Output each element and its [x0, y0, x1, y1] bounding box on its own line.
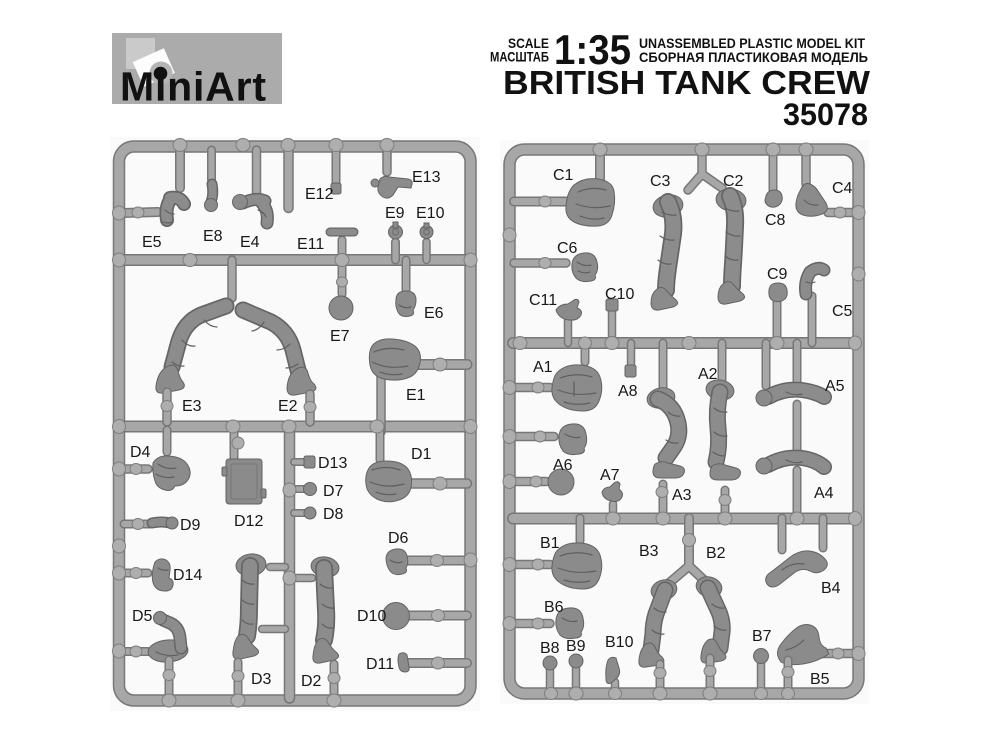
svg-text:A4: A4 — [814, 485, 834, 502]
svg-text:D9: D9 — [180, 517, 201, 534]
svg-text:C4: C4 — [832, 180, 853, 197]
svg-text:B9: B9 — [566, 638, 586, 655]
svg-text:C2: C2 — [723, 173, 744, 190]
svg-text:D4: D4 — [130, 444, 151, 461]
svg-text:E5: E5 — [142, 234, 162, 251]
svg-text:C1: C1 — [553, 167, 574, 184]
svg-text:B3: B3 — [639, 543, 659, 560]
svg-text:B1: B1 — [540, 535, 560, 552]
svg-text:UNASSEMBLED PLASTIC MODEL KIT: UNASSEMBLED PLASTIC MODEL KIT — [639, 36, 866, 51]
svg-text:D6: D6 — [388, 530, 409, 547]
svg-text:E10: E10 — [416, 205, 445, 222]
svg-text:C10: C10 — [605, 286, 634, 303]
svg-text:B5: B5 — [810, 671, 830, 688]
svg-text:D11: D11 — [366, 656, 394, 673]
svg-text:D3: D3 — [251, 671, 272, 688]
svg-text:B8: B8 — [540, 640, 560, 657]
svg-text:D10: D10 — [357, 608, 386, 625]
svg-text:C6: C6 — [557, 240, 578, 257]
svg-text:B2: B2 — [706, 545, 726, 562]
svg-text:СБОРНАЯ ПЛАСТИКОВАЯ МОДЕЛЬ: СБОРНАЯ ПЛАСТИКОВАЯ МОДЕЛЬ — [639, 50, 868, 65]
svg-text:B4: B4 — [821, 580, 841, 597]
svg-text:A1: A1 — [533, 359, 553, 376]
svg-text:E7: E7 — [330, 328, 350, 345]
svg-text:MiniArt: MiniArt — [120, 64, 267, 110]
svg-text:E12: E12 — [305, 186, 334, 203]
svg-text:D7: D7 — [323, 483, 344, 500]
svg-text:E8: E8 — [203, 228, 223, 245]
svg-text:D14: D14 — [173, 567, 202, 584]
svg-text:C3: C3 — [650, 173, 671, 190]
svg-text:C11: C11 — [529, 292, 557, 309]
svg-text:D12: D12 — [234, 513, 263, 530]
svg-text:E4: E4 — [240, 234, 260, 251]
svg-text:B7: B7 — [752, 628, 772, 645]
svg-text:E13: E13 — [412, 169, 441, 186]
svg-text:C8: C8 — [765, 212, 786, 229]
svg-text:E6: E6 — [424, 305, 444, 322]
svg-text:A2: A2 — [698, 366, 718, 383]
svg-text:E9: E9 — [385, 205, 405, 222]
svg-text:E1: E1 — [406, 387, 426, 404]
svg-text:A5: A5 — [825, 378, 845, 395]
svg-text:E11: E11 — [297, 236, 324, 253]
svg-text:A7: A7 — [600, 467, 620, 484]
svg-text:E2: E2 — [278, 398, 298, 415]
svg-text:C9: C9 — [767, 266, 788, 283]
svg-text:B10: B10 — [605, 634, 634, 651]
svg-text:D2: D2 — [301, 673, 322, 690]
svg-text:D8: D8 — [323, 506, 344, 523]
svg-text:B6: B6 — [544, 599, 564, 616]
svg-text:D1: D1 — [411, 446, 432, 463]
svg-text:E3: E3 — [182, 398, 202, 415]
svg-text:D5: D5 — [132, 608, 153, 625]
svg-text:35078: 35078 — [783, 96, 868, 132]
svg-text:МАСШТАБ: МАСШТАБ — [490, 50, 549, 65]
svg-text:A3: A3 — [672, 487, 692, 504]
svg-text:A8: A8 — [618, 383, 638, 400]
svg-text:D13: D13 — [318, 455, 347, 472]
svg-text:A6: A6 — [553, 457, 573, 474]
svg-text:C5: C5 — [832, 303, 853, 320]
